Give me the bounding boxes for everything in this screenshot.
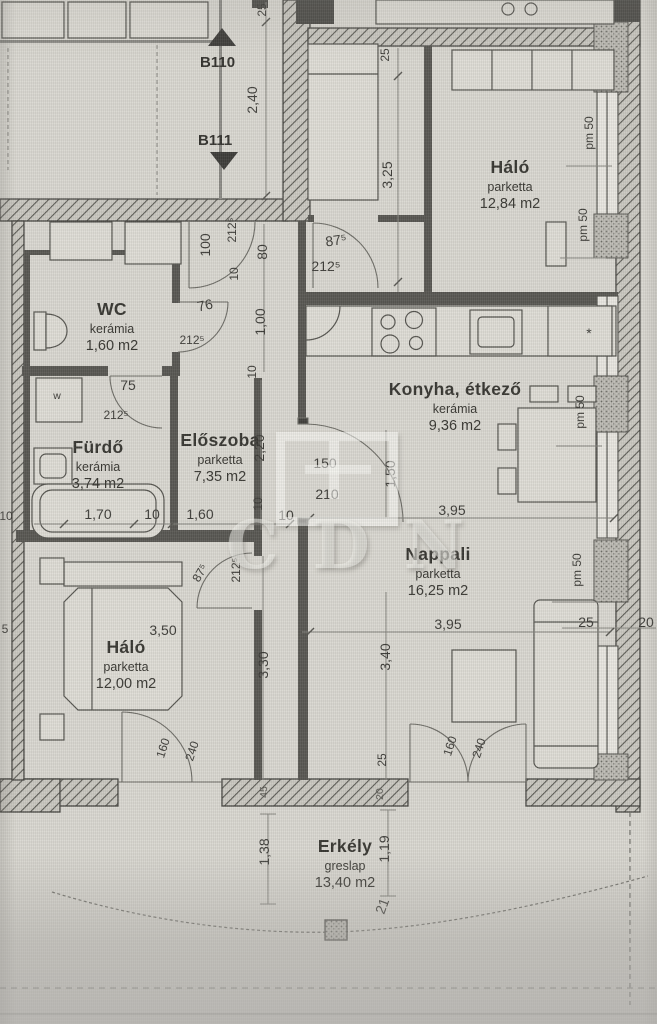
- stair-marker-b111: B111: [198, 132, 232, 149]
- dim-label: 75: [120, 378, 136, 392]
- room-name: Konyha, étkező: [389, 381, 522, 399]
- dim-label: 76: [196, 297, 214, 314]
- dim-label: 20: [375, 788, 386, 800]
- neighbor-counter-icon: [376, 0, 614, 24]
- dim-label: 3,50: [149, 623, 176, 637]
- bed-icon: [308, 44, 378, 200]
- room-floor: kerámia: [86, 322, 138, 335]
- room-floor: parketta: [180, 453, 259, 466]
- room-floor: kerámia: [72, 460, 124, 473]
- dim-label: 1,60: [186, 507, 213, 521]
- dim-label: w: [53, 391, 61, 402]
- dim-label: 10: [246, 365, 258, 378]
- dim-label: 212⁵: [311, 259, 340, 273]
- dim-label: 10: [228, 267, 240, 280]
- dim-label: 100: [198, 233, 212, 256]
- washbasin-icon: [34, 448, 72, 484]
- dim-label: pm 50: [571, 553, 583, 586]
- dim-label: 2,20: [252, 434, 266, 461]
- dim-label: 1,19: [377, 835, 391, 862]
- dim-label: 212⁵: [104, 409, 129, 421]
- room-name: Háló: [480, 159, 540, 177]
- dim-label: pm 50: [574, 395, 586, 428]
- room-floor: parketta: [480, 180, 540, 193]
- room-floor: parketta: [96, 660, 156, 673]
- dim-label: 3,95: [434, 617, 461, 631]
- dim-label: pm 50: [577, 208, 589, 241]
- watermark-logo-bar: [305, 465, 371, 474]
- dim-label: 1,00: [253, 308, 267, 335]
- room-area: 12,00 m2: [96, 677, 156, 692]
- toilet-icon: [34, 312, 67, 350]
- room-area: 9,36 m2: [389, 419, 522, 434]
- room-label-wc: WC kerámia 1,60 m2: [86, 301, 138, 354]
- dim-label: 3,40: [378, 643, 392, 670]
- room-label-furdo: Fürdő kerámia 3,74 m2: [72, 439, 124, 492]
- dim-label: 2,40: [245, 86, 259, 113]
- dim-label: 5: [2, 623, 9, 635]
- room-label-eloszoba: Előszoba parketta 7,35 m2: [180, 432, 259, 485]
- room-floor: greslap: [315, 859, 375, 872]
- dim-label: 212⁵: [180, 334, 205, 346]
- dim-label: 10: [144, 507, 160, 521]
- dim-label: 212⁵: [226, 218, 238, 243]
- room-area: 16,25 m2: [405, 584, 470, 599]
- dim-label: 25: [379, 48, 391, 61]
- dim-label: 3,30: [256, 651, 270, 678]
- dim-label: 1,70: [84, 507, 111, 521]
- room-area: 1,60 m2: [86, 339, 138, 354]
- dim-label: 25: [578, 615, 594, 629]
- room-name: Erkély: [315, 838, 375, 856]
- stair-marker-b110: B110: [200, 54, 235, 71]
- watermark-text: CDN: [226, 506, 498, 584]
- room-area: 13,40 m2: [315, 876, 375, 891]
- dim-label: *: [586, 326, 591, 340]
- room-label-halo-bottom: Háló parketta 12,00 m2: [96, 639, 156, 692]
- dim-label: 25: [256, 3, 268, 16]
- room-name: Előszoba: [180, 432, 259, 450]
- dim-label: 87⁵: [324, 232, 347, 249]
- room-name: WC: [86, 301, 138, 319]
- room-area: 12,84 m2: [480, 197, 540, 212]
- dim-label: pm 50: [583, 116, 595, 149]
- dim-label: 3,25: [380, 161, 394, 188]
- room-label-halo-top: Háló parketta 12,84 m2: [480, 159, 540, 212]
- dim-label: 80: [255, 244, 269, 260]
- room-name: Fürdő: [72, 439, 124, 457]
- room-label-erkely: Erkély greslap 13,40 m2: [315, 838, 375, 891]
- room-area: 7,35 m2: [180, 470, 259, 485]
- dim-label: 45: [259, 786, 270, 798]
- dim-label: 25: [376, 753, 388, 766]
- room-name: Háló: [96, 639, 156, 657]
- room-floor: kerámia: [389, 402, 522, 415]
- dim-label: 10: [0, 510, 13, 522]
- dim-label: 1,38: [257, 838, 271, 865]
- dim-label: 20: [638, 615, 654, 629]
- kitchen-counter-icon: [306, 306, 616, 356]
- room-area: 3,74 m2: [72, 477, 124, 492]
- stair-down-icon: [210, 152, 238, 170]
- stair-up-icon: [208, 28, 236, 46]
- room-label-konyha: Konyha, étkező kerámia 9,36 m2: [389, 381, 522, 434]
- floorplan-photo: B110 B111 Háló parketta 12,84 m2 WC kerá…: [0, 0, 657, 1024]
